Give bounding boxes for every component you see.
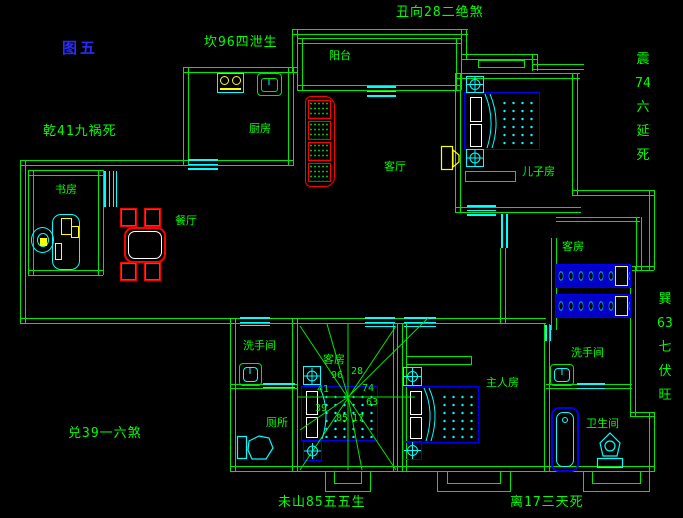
door-opening <box>404 317 436 327</box>
window <box>467 205 496 216</box>
wall-segment <box>500 248 506 324</box>
nightstand <box>303 441 322 461</box>
wall-segment <box>183 67 189 166</box>
vertical-annotation-char: 六 <box>636 100 649 115</box>
wall-segment <box>455 73 461 213</box>
bed-blanket <box>500 99 538 147</box>
vertical-annotation-char: 74 <box>635 76 651 91</box>
cabinet <box>465 171 516 182</box>
pillow <box>306 417 318 438</box>
room-label-kitchen: 厨房 <box>249 123 271 135</box>
wall-segment <box>288 67 294 166</box>
bay-window <box>447 471 501 484</box>
room-label-study: 书房 <box>55 184 77 196</box>
vertical-annotation-char: 死 <box>636 148 649 163</box>
room-label-son-room: 儿子房 <box>522 166 555 178</box>
room-label-washroom-a: 洗手间 <box>243 340 276 352</box>
compass-number-sw: 85 <box>336 414 348 424</box>
room-label-balcony: 阳台 <box>329 50 351 62</box>
computer-case-icon <box>71 226 79 238</box>
floor-plan-canvas: 阳台 厨房 书房 餐厅 客厅 儿子房 客房 客房 主人房 洗手间 厕所 洗手间 … <box>0 0 683 518</box>
vertical-annotation-char: 伏 <box>658 364 671 379</box>
pillow <box>615 266 628 286</box>
stove-burner-icon <box>232 76 241 85</box>
vertical-annotation-char: 63 <box>657 316 673 331</box>
closet-shelf <box>478 60 525 68</box>
wall-segment <box>230 318 236 472</box>
pillow <box>615 296 628 316</box>
room-label-dining: 餐厅 <box>175 215 197 227</box>
nightstand <box>303 366 321 385</box>
wall-segment <box>630 266 636 416</box>
dining-chair <box>121 263 136 280</box>
wall-segment <box>297 38 461 44</box>
wall-segment <box>292 318 298 472</box>
window <box>240 317 270 326</box>
annotation-right-upper: 震74六延死 <box>632 52 654 163</box>
wall-segment <box>572 190 655 196</box>
toilet-icon <box>598 433 623 468</box>
keyboard-icon <box>55 243 62 260</box>
bed-blanket <box>440 393 476 439</box>
stove-burner-icon <box>220 76 229 85</box>
bay-window <box>334 471 362 484</box>
window <box>188 159 218 170</box>
dining-chair <box>145 209 160 226</box>
bathtub-drain <box>562 417 568 423</box>
nightstand <box>403 441 422 460</box>
compass-number-se: 17 <box>352 414 364 424</box>
annotation-bottom-center: 未山85五五生 <box>278 496 366 510</box>
figure-label: 图五 <box>62 37 98 58</box>
washbasin-bowl <box>554 368 570 382</box>
room-label-living: 客厅 <box>384 161 406 173</box>
sofa-cushion <box>308 100 331 119</box>
door-opening <box>365 317 395 327</box>
stove-panel <box>220 88 241 90</box>
compass-number-wl: 39 <box>315 404 327 414</box>
wall-segment <box>28 170 34 275</box>
pillow <box>470 97 482 122</box>
wall-segment <box>28 170 104 176</box>
nightstand <box>466 76 484 93</box>
door <box>501 214 508 248</box>
wall-segment <box>649 412 655 472</box>
wall-segment <box>393 324 398 472</box>
vertical-annotation-char: 震 <box>636 52 649 67</box>
bay-window <box>592 471 641 484</box>
sofa-cushion <box>308 142 331 161</box>
compass-number-nw: 96 <box>331 371 343 381</box>
door <box>104 171 117 207</box>
compass-number-ne: 28 <box>351 367 363 377</box>
door <box>545 325 551 341</box>
room-label-washroom-b: 洗手间 <box>571 347 604 359</box>
room-label-guest-right: 客房 <box>562 241 584 253</box>
vertical-annotation-char: 七 <box>658 340 671 355</box>
wall-segment <box>649 190 655 270</box>
wall-segment <box>28 270 103 276</box>
wall-segment <box>556 217 640 222</box>
wall-segment <box>297 38 303 90</box>
nightstand <box>403 367 422 386</box>
dining-table-top <box>128 231 162 259</box>
wall-segment <box>20 160 26 324</box>
annotation-top-left: 坎96四泄生 <box>204 36 278 50</box>
sofa-cushion <box>308 121 331 140</box>
vertical-annotation-char: 延 <box>636 124 649 139</box>
annotation-top-center: 丑向28二绝煞 <box>396 6 484 20</box>
wall-segment <box>20 160 189 166</box>
room-label-guest-center: 客房 <box>323 354 345 366</box>
nightstand <box>466 149 484 167</box>
wall-segment <box>636 217 642 270</box>
wall-segment <box>532 64 584 70</box>
sliding-door <box>263 383 295 388</box>
pillow <box>410 391 422 415</box>
annotation-left: 乾41九祸死 <box>43 125 117 139</box>
room-label-bathroom: 卫生间 <box>586 418 619 430</box>
sofa-cushion <box>308 163 331 182</box>
wall-segment <box>572 73 578 195</box>
window <box>367 86 396 97</box>
washbasin-bowl <box>243 367 258 382</box>
wall-segment <box>20 318 546 324</box>
vertical-annotation-char: 巽 <box>658 292 671 307</box>
pillow <box>410 417 422 439</box>
kitchen-sink-basin <box>261 78 278 92</box>
annotation-right-lower: 巽63七伏旺 <box>654 292 676 403</box>
annotation-bottom-left: 兑39一六煞 <box>68 427 142 441</box>
annotation-bottom-right: 离17三天死 <box>510 496 584 510</box>
vertical-annotation-char: 旺 <box>658 388 671 403</box>
pillow <box>470 124 482 147</box>
dining-chair <box>121 209 136 226</box>
room-label-master: 主人房 <box>486 377 519 389</box>
compass-number-eu: 74 <box>362 384 374 394</box>
wall-segment <box>544 324 550 472</box>
room-label-toilet: 厕所 <box>266 417 288 429</box>
wardrobe-shelf <box>406 356 472 365</box>
compass-number-wu: 41 <box>317 385 329 395</box>
dining-chair <box>145 263 160 280</box>
wall-segment <box>292 29 468 35</box>
compass-number-el: 63 <box>366 398 378 408</box>
window <box>577 383 605 389</box>
toilet-icon <box>238 436 274 459</box>
mouse-icon <box>40 238 47 246</box>
